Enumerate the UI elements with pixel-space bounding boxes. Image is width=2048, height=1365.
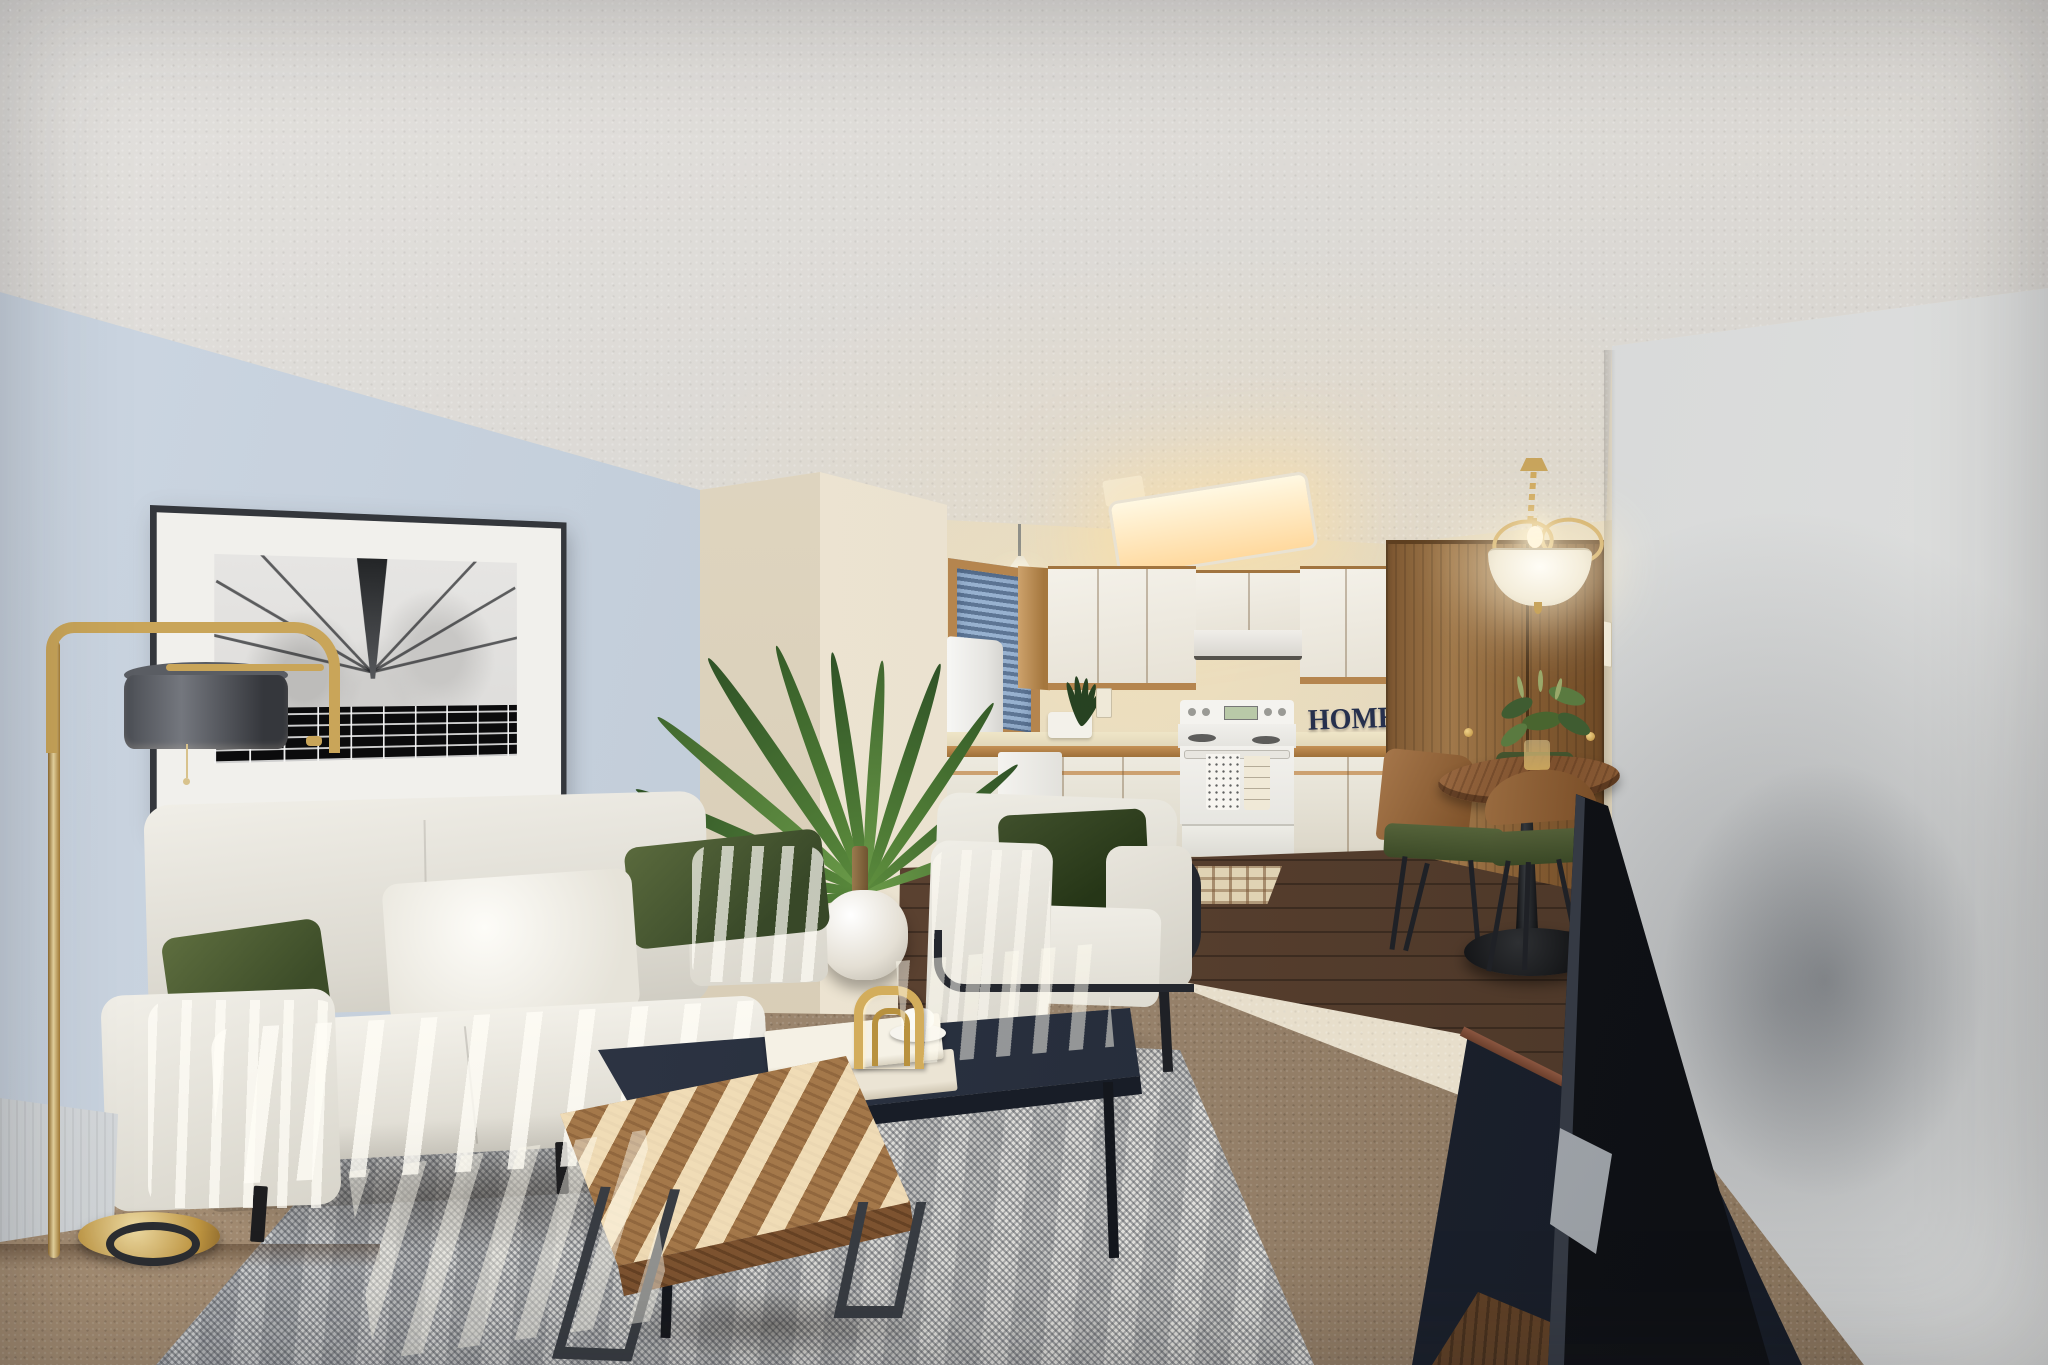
stove-knob [1188, 708, 1196, 716]
home-sign: HOME [1307, 701, 1394, 744]
burner [1252, 736, 1280, 744]
stove-backguard [1180, 700, 1294, 726]
palm-pot [820, 890, 908, 980]
artwork-ray [372, 587, 517, 674]
tea-towel-dotted [1206, 754, 1240, 810]
cabinet-seam [1345, 569, 1347, 677]
cabinet-seam [1248, 573, 1250, 631]
chandelier-finial [1534, 602, 1542, 614]
chandelier-bulb [1527, 526, 1543, 548]
cabinet-seam [1146, 569, 1148, 683]
sofa-leg [555, 1142, 569, 1194]
oven-drawer [1182, 824, 1294, 856]
armchair-frame-front [934, 930, 1194, 992]
artwork-ray [372, 633, 517, 673]
burner [1188, 734, 1216, 742]
lamp-pull-chain [186, 744, 188, 778]
glass-vase [1524, 740, 1550, 770]
stove-knob [1278, 708, 1286, 716]
lamp-cross-rod [166, 664, 324, 671]
light-switch [1096, 688, 1112, 718]
lamp-pull-chain-ball [183, 778, 190, 785]
vase-bud [1538, 670, 1543, 692]
gold-arch-sculpture-inner [872, 1008, 910, 1066]
cabinet-oak-side-panel [1018, 566, 1050, 690]
green-pillow-right [623, 828, 831, 950]
lamp-base-ring [106, 1222, 200, 1266]
upper-cabinets-left [1048, 566, 1196, 690]
range-hood [1194, 630, 1302, 660]
stove-cooktop [1178, 724, 1296, 748]
tea-towel-cream [1244, 756, 1270, 810]
stove-knob [1202, 708, 1210, 716]
sofa-left-arm [100, 988, 341, 1212]
dining-chair-near-seat [1489, 828, 1587, 867]
lamp-fitting [306, 736, 322, 746]
upper-cabinets-right [1300, 566, 1390, 684]
stove-knob [1264, 708, 1272, 716]
cabinets-above-hood [1196, 570, 1300, 638]
lamp-shade [124, 675, 288, 749]
apartment-photo: HOME [0, 0, 2048, 1365]
oven-door [1180, 746, 1294, 824]
counter-plant [1056, 676, 1100, 726]
stove-display [1224, 706, 1258, 720]
closet-knob [1464, 728, 1473, 737]
cabinet-seam [1097, 569, 1099, 683]
